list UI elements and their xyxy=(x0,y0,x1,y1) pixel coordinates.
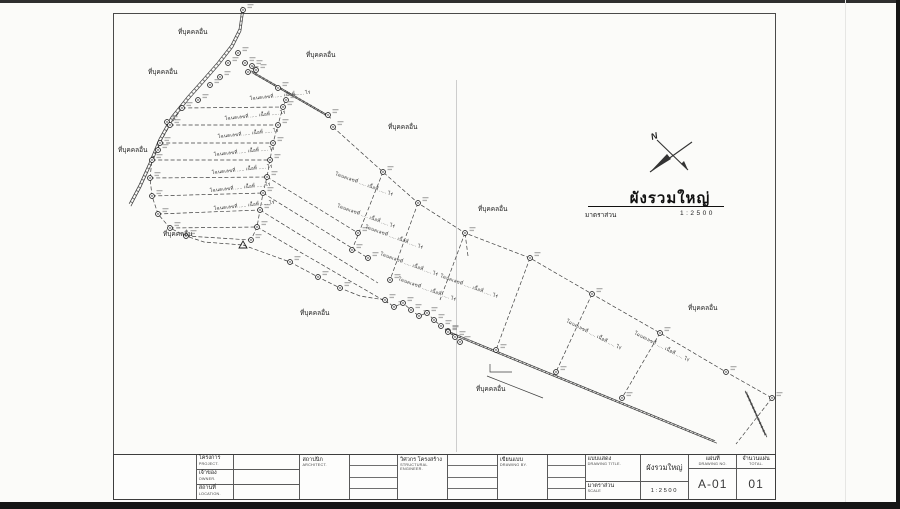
drawing-title-header: แบบแสดง DRAWING TITLE. xyxy=(586,455,640,482)
parcel-boundary-line xyxy=(440,233,465,300)
marker-id-microtext xyxy=(233,60,238,61)
marker-id-microtext xyxy=(157,157,162,158)
survey-marker-dot xyxy=(357,232,358,233)
marker-id-microtext xyxy=(283,85,288,86)
parcel-deed-label: โฉนดเลขที่ ..... เนื้อที่ ..... ไร่ xyxy=(249,89,311,101)
marker-id-microtext xyxy=(155,175,160,176)
survey-marker-dot xyxy=(285,99,286,100)
marker-id-microtext xyxy=(363,230,368,231)
marker-id-microtext xyxy=(665,330,670,331)
marker-id-microtext xyxy=(272,171,278,172)
marker-id-microtext xyxy=(390,294,396,295)
marker-id-microtext xyxy=(165,137,171,138)
survey-marker-dot xyxy=(339,287,340,288)
parcel-deed-label: โฉนดเลขที่ ..... เนื้อที่ ..... ไร่ xyxy=(566,318,623,351)
marker-id-microtext xyxy=(453,326,459,327)
marker-id-microtext xyxy=(345,282,351,283)
marker-id-microtext xyxy=(446,323,451,324)
drawn-by-signature-lines xyxy=(548,455,585,499)
marker-id-microtext xyxy=(535,255,540,256)
total-sheets-value: 01 xyxy=(737,469,775,499)
marker-id-microtext xyxy=(460,331,466,332)
marker-id-microtext xyxy=(535,252,541,253)
parcel-deed-label: โฉนดเลขที่ ..... เนื้อที่ ..... ไร่ xyxy=(211,163,273,175)
parcel-deed-label: โฉนดเลขที่ ..... เนื้อที่ ..... ไร่ xyxy=(217,127,279,139)
marker-id-microtext xyxy=(163,144,169,145)
survey-marker-dot xyxy=(259,209,260,210)
architect-label: สถาปนิก ARCHITECT. xyxy=(300,455,350,499)
total-sheets-label: จำนวนแผ่น TOTAL. xyxy=(737,455,775,469)
marker-id-microtext xyxy=(250,57,256,58)
owner-value xyxy=(234,470,300,484)
marker-id-microtext xyxy=(439,317,444,318)
parcel-deed-label: โฉนดเลขที่ ..... เนื้อที่ ..... ไร่ xyxy=(224,109,286,121)
adjacent-land-label: ที่บุคคลอื่น xyxy=(163,229,193,238)
location-label: สถานที่ LOCATION. xyxy=(197,485,234,499)
scan-edge-right xyxy=(896,0,900,509)
parcel-deed-label: โฉนดเลขที่ ..... เนื้อที่ ..... ไร่ xyxy=(380,250,440,277)
survey-marker-dot xyxy=(591,293,592,294)
marker-id-microtext xyxy=(388,166,394,167)
adjacent-land-label: ที่บุคคลอื่น xyxy=(148,67,178,76)
marker-id-microtext xyxy=(256,237,261,238)
survey-marker-dot xyxy=(402,302,403,303)
location-value xyxy=(234,485,300,499)
marker-id-microtext xyxy=(268,190,273,191)
marker-id-microtext xyxy=(157,193,162,194)
marker-id-microtext xyxy=(731,369,736,370)
marker-id-microtext xyxy=(283,122,288,123)
marker-id-microtext xyxy=(423,197,429,198)
project-row: โครงการ PROJECT. xyxy=(197,455,300,470)
survey-marker-dot xyxy=(351,249,352,250)
title-block-logo-cell xyxy=(114,455,197,499)
marker-id-microtext xyxy=(665,327,671,328)
marker-id-microtext xyxy=(470,227,476,228)
survey-marker-dot xyxy=(382,171,383,172)
marker-id-microtext xyxy=(777,395,782,396)
detail-line xyxy=(490,364,512,372)
adjacent-land-label: ที่บุคคลอื่น xyxy=(178,27,208,36)
drawn-by-label: เขียนแบบ DRAWING BY. xyxy=(498,455,548,499)
scale-label: มาตราส่วน xyxy=(585,210,616,220)
marker-id-microtext xyxy=(501,344,507,345)
marker-id-microtext xyxy=(283,82,289,83)
survey-marker-dot xyxy=(266,176,267,177)
survey-marker-dot xyxy=(464,232,465,233)
survey-marker-dot xyxy=(251,65,252,66)
survey-marker-dot xyxy=(433,319,434,320)
marker-id-microtext xyxy=(333,109,339,110)
marker-id-microtext xyxy=(357,244,363,245)
marker-id-microtext xyxy=(248,7,253,8)
survey-marker-dot xyxy=(555,371,556,372)
marker-id-microtext xyxy=(172,116,178,117)
drawn-by-cell: เขียนแบบ DRAWING BY. xyxy=(498,455,586,499)
survey-marker-dot xyxy=(149,177,150,178)
marker-id-microtext xyxy=(278,137,284,138)
marker-id-microtext xyxy=(373,255,378,256)
marker-id-microtext xyxy=(275,157,280,158)
adjacent-land-label: ที่บุคคลอื่น xyxy=(306,50,336,59)
survey-marker-dot xyxy=(169,227,170,228)
marker-id-microtext xyxy=(597,288,603,289)
adjacent-land-label: ที่บุคคลอื่น xyxy=(478,204,508,213)
scanned-drawing-sheet: ที่บุคคลอื่นที่บุคคลอื่นที่บุคคลอื่นที่บ… xyxy=(0,0,900,509)
structural-engineer-cell: วิศวกร โครงสร้าง STRUCTURAL ENGINEER. xyxy=(398,455,498,499)
marker-id-microtext xyxy=(295,259,300,260)
marker-id-microtext xyxy=(561,369,566,370)
scale-value: 1:2500 xyxy=(680,210,715,217)
parcel-boundary-line xyxy=(465,233,468,256)
scan-edge-bottom xyxy=(0,502,900,509)
parcel-boundary-line xyxy=(496,258,530,350)
marker-id-microtext xyxy=(261,64,267,65)
adjacent-land-label: ที่บุคคลอื่น xyxy=(476,384,506,393)
survey-marker-dot xyxy=(277,87,278,88)
architect-signature-lines xyxy=(350,455,397,499)
marker-id-microtext xyxy=(157,154,163,155)
marker-id-microtext xyxy=(731,366,737,367)
marker-id-microtext xyxy=(291,97,296,98)
marker-id-microtext xyxy=(395,274,401,275)
marker-id-microtext xyxy=(423,200,428,201)
marker-id-microtext xyxy=(175,122,180,123)
drawing-title-cell: แบบแสดง DRAWING TITLE. มาตราส่วน SCALE ผ… xyxy=(586,455,690,499)
survey-marker-dot xyxy=(426,312,427,313)
survey-marker-dot xyxy=(621,397,622,398)
adjacent-land-label: ที่บุคคลอื่น xyxy=(118,145,148,154)
survey-marker-dot xyxy=(384,299,385,300)
survey-marker-dot xyxy=(389,279,390,280)
survey-marker-dot xyxy=(197,99,198,100)
parcel-boundary-line xyxy=(243,245,385,300)
marker-id-microtext xyxy=(470,230,475,231)
marker-id-microtext xyxy=(163,211,168,212)
adjacent-land-label: ที่บุคคลอื่น xyxy=(688,303,718,312)
marker-id-microtext xyxy=(357,247,362,248)
marker-id-microtext xyxy=(465,336,471,337)
survey-marker-dot xyxy=(495,349,496,350)
parcel-boundary-line xyxy=(170,227,257,228)
marker-id-microtext xyxy=(446,320,452,321)
marker-id-microtext xyxy=(262,224,267,225)
road-edge xyxy=(129,7,242,204)
marker-id-microtext xyxy=(432,310,437,311)
sheet-number-label: แผ่นที่ DRAWING NO. xyxy=(689,455,736,469)
marker-id-microtext xyxy=(416,307,421,308)
survey-marker-dot xyxy=(327,114,328,115)
survey-marker-dot xyxy=(417,202,418,203)
sheet-number-value: A-01 xyxy=(689,469,736,499)
adjacent-land-label: ที่บุคคลอื่น xyxy=(388,122,418,131)
survey-marker-dot xyxy=(250,239,251,240)
parcel-boundary-line xyxy=(260,210,378,283)
marker-id-microtext xyxy=(408,297,414,298)
marker-id-microtext xyxy=(233,57,239,58)
marker-id-microtext xyxy=(275,154,281,155)
title-block: โครงการ PROJECT. เจ้าของ OWNER. สถานที่ … xyxy=(113,454,776,500)
survey-marker-dot xyxy=(256,226,257,227)
marker-id-microtext xyxy=(439,314,445,315)
survey-marker-dot xyxy=(440,325,441,326)
north-arrow-icon: N xyxy=(640,128,700,176)
marker-id-microtext xyxy=(225,74,230,75)
marker-id-microtext xyxy=(465,339,470,340)
survey-marker-dot xyxy=(166,121,167,122)
road-edge xyxy=(747,393,767,437)
survey-marker-dot xyxy=(771,397,772,398)
parcel-boundary-line xyxy=(150,108,243,245)
parcel-deed-label: โฉนดเลขที่ ..... เนื้อที่ ..... ไร่ xyxy=(213,145,275,157)
survey-marker-dot xyxy=(367,257,368,258)
marker-id-microtext xyxy=(338,124,343,125)
parcel-boundary-line xyxy=(182,107,283,108)
marker-id-microtext xyxy=(333,112,338,113)
survey-marker-dot xyxy=(247,71,248,72)
marker-id-microtext xyxy=(157,190,163,191)
marker-id-microtext xyxy=(627,395,632,396)
marker-id-microtext xyxy=(777,392,783,393)
scale-header: มาตราส่วน SCALE xyxy=(586,482,640,499)
structural-engineer-label: วิศวกร โครงสร้าง STRUCTURAL ENGINEER. xyxy=(398,455,448,499)
survey-marker-dot xyxy=(262,192,263,193)
road-line xyxy=(130,8,243,205)
survey-marker-dot xyxy=(459,341,460,342)
survey-marker-dot xyxy=(317,276,318,277)
parcel-boundary-line xyxy=(152,193,263,196)
marker-id-microtext xyxy=(272,174,277,175)
project-value xyxy=(234,455,300,469)
marker-id-microtext xyxy=(203,94,209,95)
marker-id-microtext xyxy=(256,234,262,235)
survey-marker-dot xyxy=(151,195,152,196)
owner-label: เจ้าของ OWNER. xyxy=(197,470,234,484)
marker-id-microtext xyxy=(225,71,231,72)
marker-id-microtext xyxy=(175,119,181,120)
marker-id-microtext xyxy=(627,392,633,393)
survey-marker-dot xyxy=(447,331,448,332)
marker-id-microtext xyxy=(165,140,170,141)
survey-marker-dot xyxy=(209,84,210,85)
adjacent-land-label: ที่บุคคลอื่น xyxy=(300,308,330,317)
scale-value-cell: 1:2500 xyxy=(641,482,689,499)
location-row: สถานที่ LOCATION. xyxy=(197,485,300,499)
marker-id-microtext xyxy=(261,67,266,68)
marker-id-microtext xyxy=(215,82,220,83)
survey-marker-dot xyxy=(237,52,238,53)
survey-marker-dot xyxy=(418,315,419,316)
marker-id-microtext xyxy=(163,208,169,209)
survey-marker-dot xyxy=(227,62,228,63)
marker-id-microtext xyxy=(250,60,255,61)
marker-id-microtext xyxy=(278,140,283,141)
marker-id-microtext xyxy=(408,300,413,301)
marker-id-microtext xyxy=(248,4,254,5)
marker-id-microtext xyxy=(373,252,379,253)
marker-id-microtext xyxy=(243,50,248,51)
survey-marker-dot xyxy=(277,124,278,125)
drawing-title-headers: แบบแสดง DRAWING TITLE. มาตราส่วน SCALE xyxy=(586,455,641,499)
architect-cell: สถาปนิก ARCHITECT. xyxy=(300,455,398,499)
survey-marker-dot xyxy=(242,9,243,10)
marker-id-microtext xyxy=(345,285,350,286)
parcel-boundary-line xyxy=(257,227,388,303)
marker-id-microtext xyxy=(288,101,294,102)
survey-marker-dot xyxy=(529,257,530,258)
marker-id-microtext xyxy=(265,207,270,208)
marker-id-microtext xyxy=(175,225,180,226)
parcel-boundary-line xyxy=(150,177,267,178)
parcel-deed-label: โฉนดเลขที่ ..... เนื้อที่ ..... ไร่ xyxy=(213,199,275,211)
survey-marker-dot xyxy=(454,336,455,337)
marker-id-microtext xyxy=(243,47,249,48)
survey-marker-dot xyxy=(393,306,394,307)
marker-id-microtext xyxy=(203,97,208,98)
marker-id-microtext xyxy=(187,102,193,103)
structural-signature-lines xyxy=(448,455,497,499)
marker-id-microtext xyxy=(390,297,395,298)
survey-marker-dot xyxy=(159,142,160,143)
owner-row: เจ้าของ OWNER. xyxy=(197,470,300,485)
marker-id-microtext xyxy=(416,304,422,305)
marker-id-microtext xyxy=(597,291,602,292)
site-plan: ที่บุคคลอื่นที่บุคคลอื่นที่บุคคลอื่นที่บ… xyxy=(0,0,900,509)
title-block-project-column: โครงการ PROJECT. เจ้าของ OWNER. สถานที่ … xyxy=(197,455,301,499)
drawing-title-value: ผังรวมใหญ่ xyxy=(641,455,689,482)
marker-id-microtext xyxy=(253,66,259,67)
survey-marker-dot xyxy=(181,107,182,108)
survey-marker-dot xyxy=(659,332,660,333)
survey-marker-dot xyxy=(725,371,726,372)
survey-marker-dot xyxy=(219,76,220,77)
drawing-title-values: ผังรวมใหญ่ 1:2500 xyxy=(641,455,689,499)
marker-id-microtext xyxy=(388,169,393,170)
marker-id-microtext xyxy=(187,105,192,106)
survey-marker-dot xyxy=(157,213,158,214)
survey-marker-dot xyxy=(169,124,170,125)
survey-marker-dot xyxy=(289,261,290,262)
survey-marker-dot xyxy=(332,126,333,127)
marker-id-microtext xyxy=(460,334,465,335)
survey-marker-dot xyxy=(410,309,411,310)
marker-id-microtext xyxy=(453,329,458,330)
parcel-boundary-line xyxy=(158,210,260,214)
marker-id-microtext xyxy=(432,307,438,308)
title-underline xyxy=(588,206,724,207)
marker-id-microtext xyxy=(262,221,268,222)
marker-id-microtext xyxy=(295,256,301,257)
marker-id-microtext xyxy=(257,63,262,64)
total-sheets-cell: จำนวนแผ่น TOTAL. 01 xyxy=(737,455,775,499)
marker-id-microtext xyxy=(283,119,289,120)
survey-marker-dot xyxy=(255,69,256,70)
marker-id-microtext xyxy=(257,60,263,61)
marker-id-microtext xyxy=(215,79,221,80)
marker-id-microtext xyxy=(561,366,567,367)
marker-id-microtext xyxy=(155,172,161,173)
project-label: โครงการ PROJECT. xyxy=(197,455,234,469)
survey-marker-dot xyxy=(151,159,152,160)
marker-id-microtext xyxy=(268,187,274,188)
marker-id-microtext xyxy=(323,274,328,275)
survey-marker-dot xyxy=(244,62,245,63)
marker-id-microtext xyxy=(288,104,293,105)
marker-id-microtext xyxy=(501,347,506,348)
marker-id-microtext xyxy=(338,121,344,122)
marker-id-microtext xyxy=(163,147,168,148)
marker-id-microtext xyxy=(323,271,329,272)
marker-id-microtext xyxy=(175,222,181,223)
survey-marker-dot xyxy=(282,106,283,107)
survey-marker-dot xyxy=(272,142,273,143)
survey-marker-dot xyxy=(269,159,270,160)
survey-marker-dot xyxy=(157,149,158,150)
sheet-number-cell: แผ่นที่ DRAWING NO. A-01 xyxy=(689,455,737,499)
